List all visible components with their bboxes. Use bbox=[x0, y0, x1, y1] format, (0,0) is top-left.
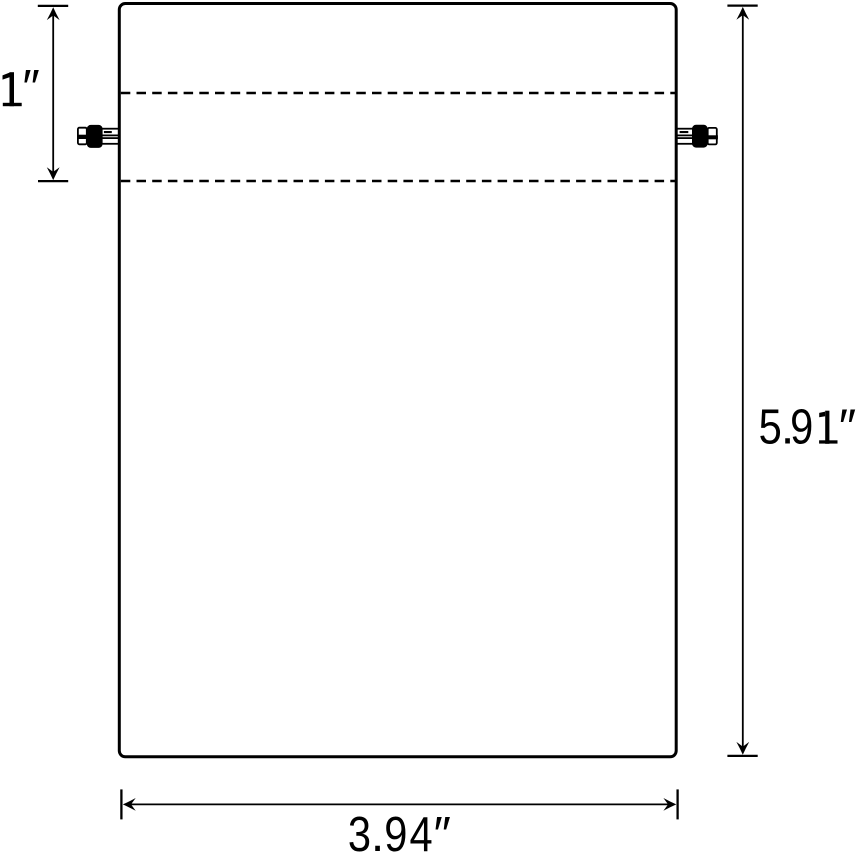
svg-text:″: ″ bbox=[434, 808, 451, 856]
svg-text:9: 9 bbox=[384, 807, 407, 856]
svg-text:9: 9 bbox=[790, 399, 813, 454]
svg-text:4: 4 bbox=[409, 807, 432, 856]
svg-text:.: . bbox=[371, 808, 385, 856]
svg-text:″: ″ bbox=[839, 400, 856, 454]
svg-text:″: ″ bbox=[22, 61, 39, 115]
svg-text:3: 3 bbox=[348, 807, 371, 856]
svg-text:5: 5 bbox=[759, 399, 782, 454]
